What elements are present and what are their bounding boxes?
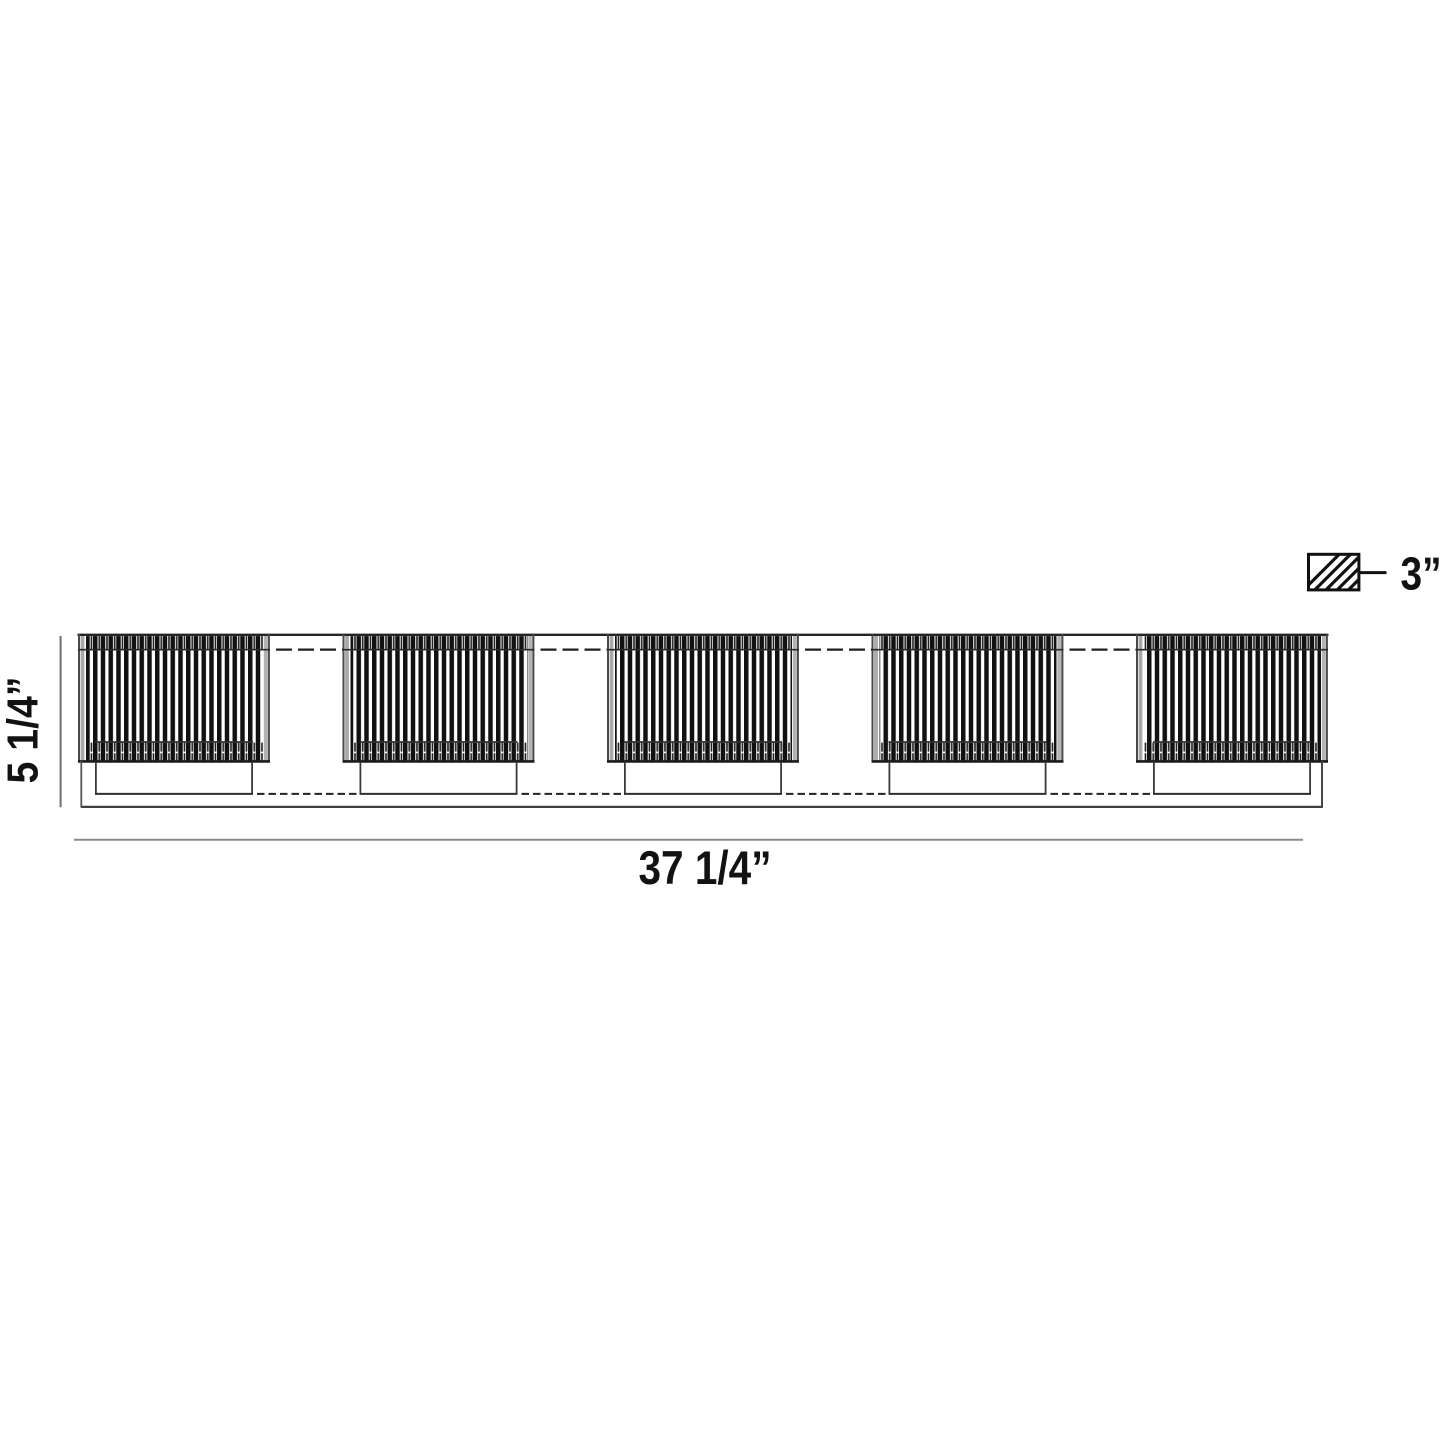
svg-text:5 1/4”: 5 1/4” <box>0 677 48 784</box>
svg-text:3”: 3” <box>1401 548 1442 600</box>
svg-text:37 1/4”: 37 1/4” <box>639 841 772 894</box>
